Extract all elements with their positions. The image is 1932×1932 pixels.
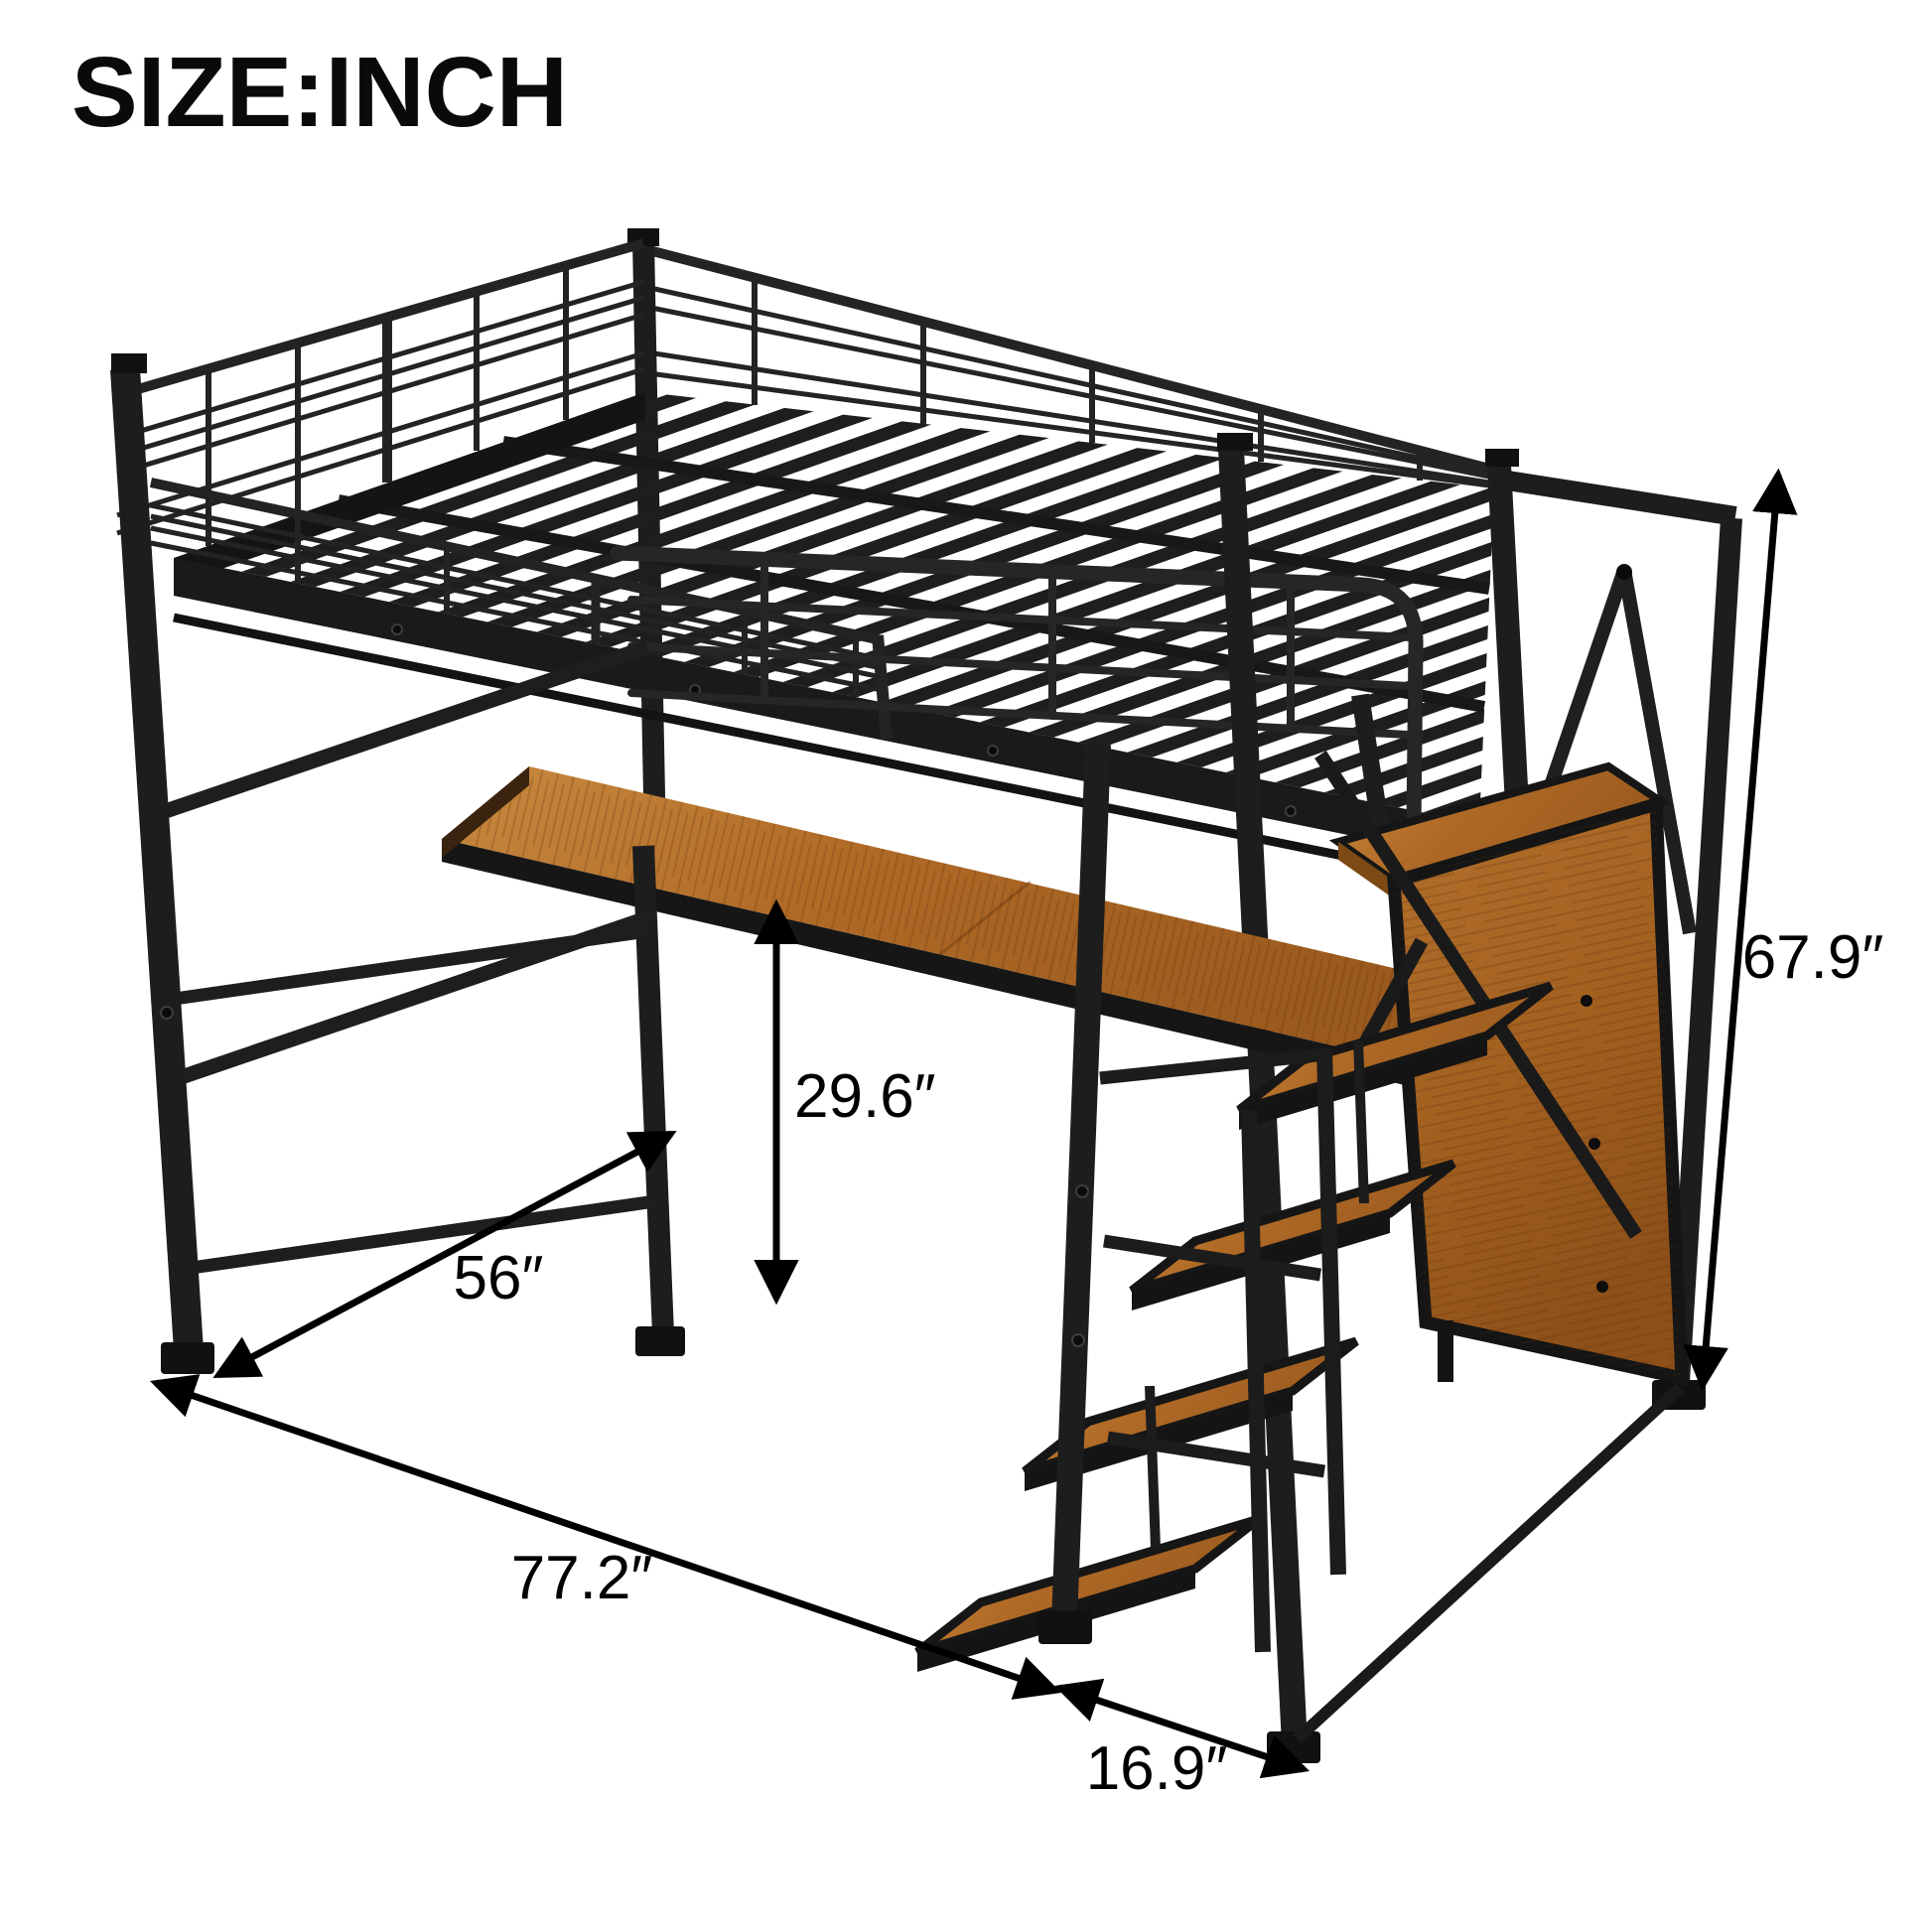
bed-length-label: 77.2″ [511,1544,653,1612]
desk-height-label: 29.6″ [794,1062,936,1131]
overall-height-label: 67.9″ [1742,923,1884,992]
desk-length-label: 56″ [454,1244,544,1312]
product-dimension-diagram: SIZE:INCH [0,0,1932,1932]
stair-depth-label: 16.9″ [1086,1734,1228,1803]
bed-deck [174,392,1494,884]
loft-bed-illustration: 67.9″ 29.6″ 56″ 77.2″ 16.9″ [0,0,1932,1932]
bed-length-arrow-icon [156,1383,1055,1691]
